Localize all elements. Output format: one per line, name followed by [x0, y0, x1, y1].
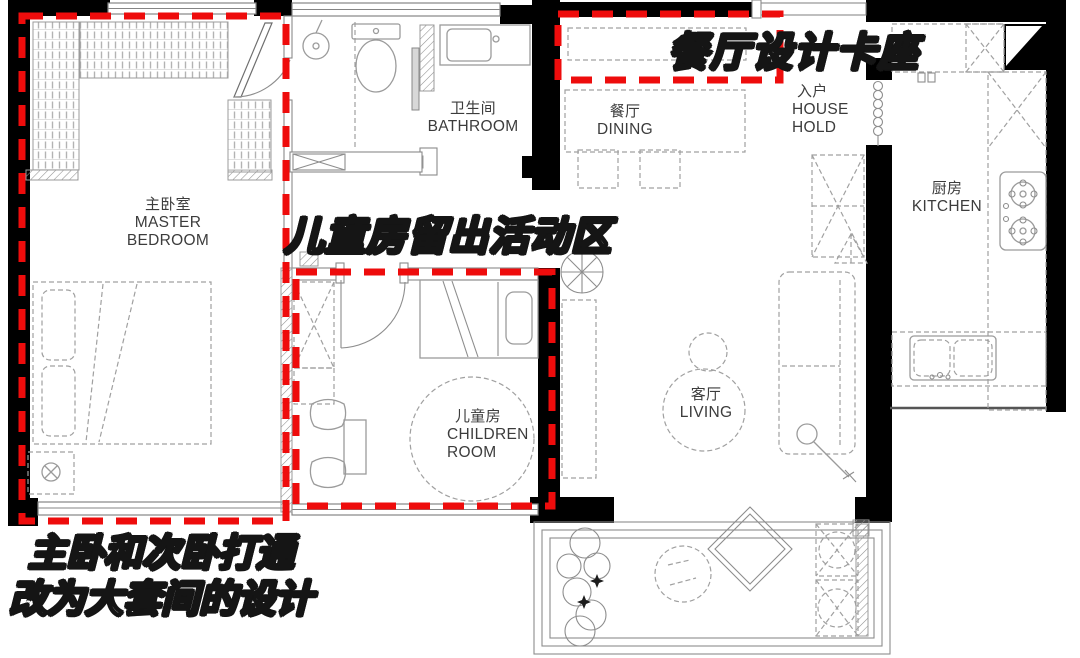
toilet-bowl — [356, 40, 396, 92]
label-entry-en: HOUSE HOLD — [792, 101, 846, 138]
bedroom-door-leaf — [234, 23, 272, 97]
door-spring-icon — [874, 82, 883, 147]
label-kitchen-zh: 厨房 — [887, 180, 1007, 198]
burner-icon — [1009, 217, 1037, 245]
label-children-room-en: CHILDREN ROOM — [447, 426, 533, 463]
label-bathroom-zh: 卫生间 — [413, 100, 533, 118]
tv-bench — [562, 300, 596, 478]
balcony-layer — [534, 507, 890, 654]
label-master-bedroom-zh: 主卧室 — [108, 196, 228, 214]
label-entry: 入户 HOUSE HOLD — [792, 83, 846, 137]
bathroom-fixtures — [290, 20, 530, 172]
label-living-en: LIVING — [666, 404, 746, 422]
wardrobe-right — [228, 100, 271, 172]
label-dining: 餐厅 DINING — [585, 103, 665, 139]
label-master-bedroom: 主卧室 MASTER BEDROOM — [108, 196, 228, 250]
label-kitchen: 厨房 KITCHEN — [887, 180, 1007, 216]
children-room-furniture — [294, 280, 538, 501]
dining-chair — [640, 150, 680, 188]
desk — [344, 420, 366, 474]
side-table — [689, 333, 727, 371]
label-children-room-zh: 儿童房 — [447, 408, 533, 426]
pillow — [42, 366, 75, 436]
annotation-master-suite-line1: 主卧和次卧打通 — [6, 530, 316, 576]
burner-icon — [1009, 180, 1037, 208]
dining-chair — [578, 150, 618, 188]
nightstand — [28, 452, 74, 494]
diamond-table — [708, 507, 792, 591]
wardrobe-left — [33, 22, 79, 170]
label-kitchen-en: KITCHEN — [887, 198, 1007, 216]
label-living-zh: 客厅 — [666, 386, 746, 404]
master-bed — [33, 282, 211, 444]
chair — [310, 458, 345, 488]
kitchen-furniture — [892, 24, 1046, 410]
label-living: 客厅 LIVING — [666, 386, 746, 422]
label-children-room: 儿童房 CHILDREN ROOM — [447, 408, 533, 462]
walls-layer — [8, 0, 1066, 526]
master-bedroom-furniture — [28, 22, 290, 494]
toilet-tank — [352, 24, 400, 39]
label-dining-en: DINING — [585, 121, 665, 139]
annotation-master-suite-line2: 改为大套间的设计 — [6, 576, 316, 622]
faucet-icon — [493, 36, 499, 42]
label-bathroom: 卫生间 BATHROOM — [413, 100, 533, 136]
arc-lamp-base — [797, 424, 817, 444]
annotation-children-activity: 儿童房留出活动区 — [284, 204, 612, 262]
floor-plan-canvas: 主卧室 MASTER BEDROOM 卫生间 BATHROOM 餐厅 DININ… — [0, 0, 1080, 658]
plants-cluster — [557, 528, 610, 646]
children-door-arc — [341, 282, 405, 348]
pillow — [506, 292, 532, 344]
label-entry-zh: 入户 — [792, 83, 846, 101]
living-furniture — [561, 234, 867, 482]
sofa — [779, 272, 855, 454]
label-dining-zh: 餐厅 — [585, 103, 665, 121]
round-table — [655, 546, 711, 602]
pillow — [42, 290, 75, 360]
vanity-counter — [440, 25, 530, 65]
washer-units — [816, 524, 858, 636]
wardrobe-top — [80, 22, 228, 78]
sink-basin — [447, 29, 491, 61]
label-master-bedroom-en: MASTER BEDROOM — [108, 214, 228, 251]
annotation-dining-booth: 餐厅设计卡座 — [668, 20, 920, 78]
kitchen-sink — [910, 336, 996, 380]
shower-head-icon — [303, 33, 329, 59]
label-bathroom-en: BATHROOM — [413, 118, 533, 136]
annotation-master-suite: 主卧和次卧打通 改为大套间的设计 — [6, 530, 316, 623]
